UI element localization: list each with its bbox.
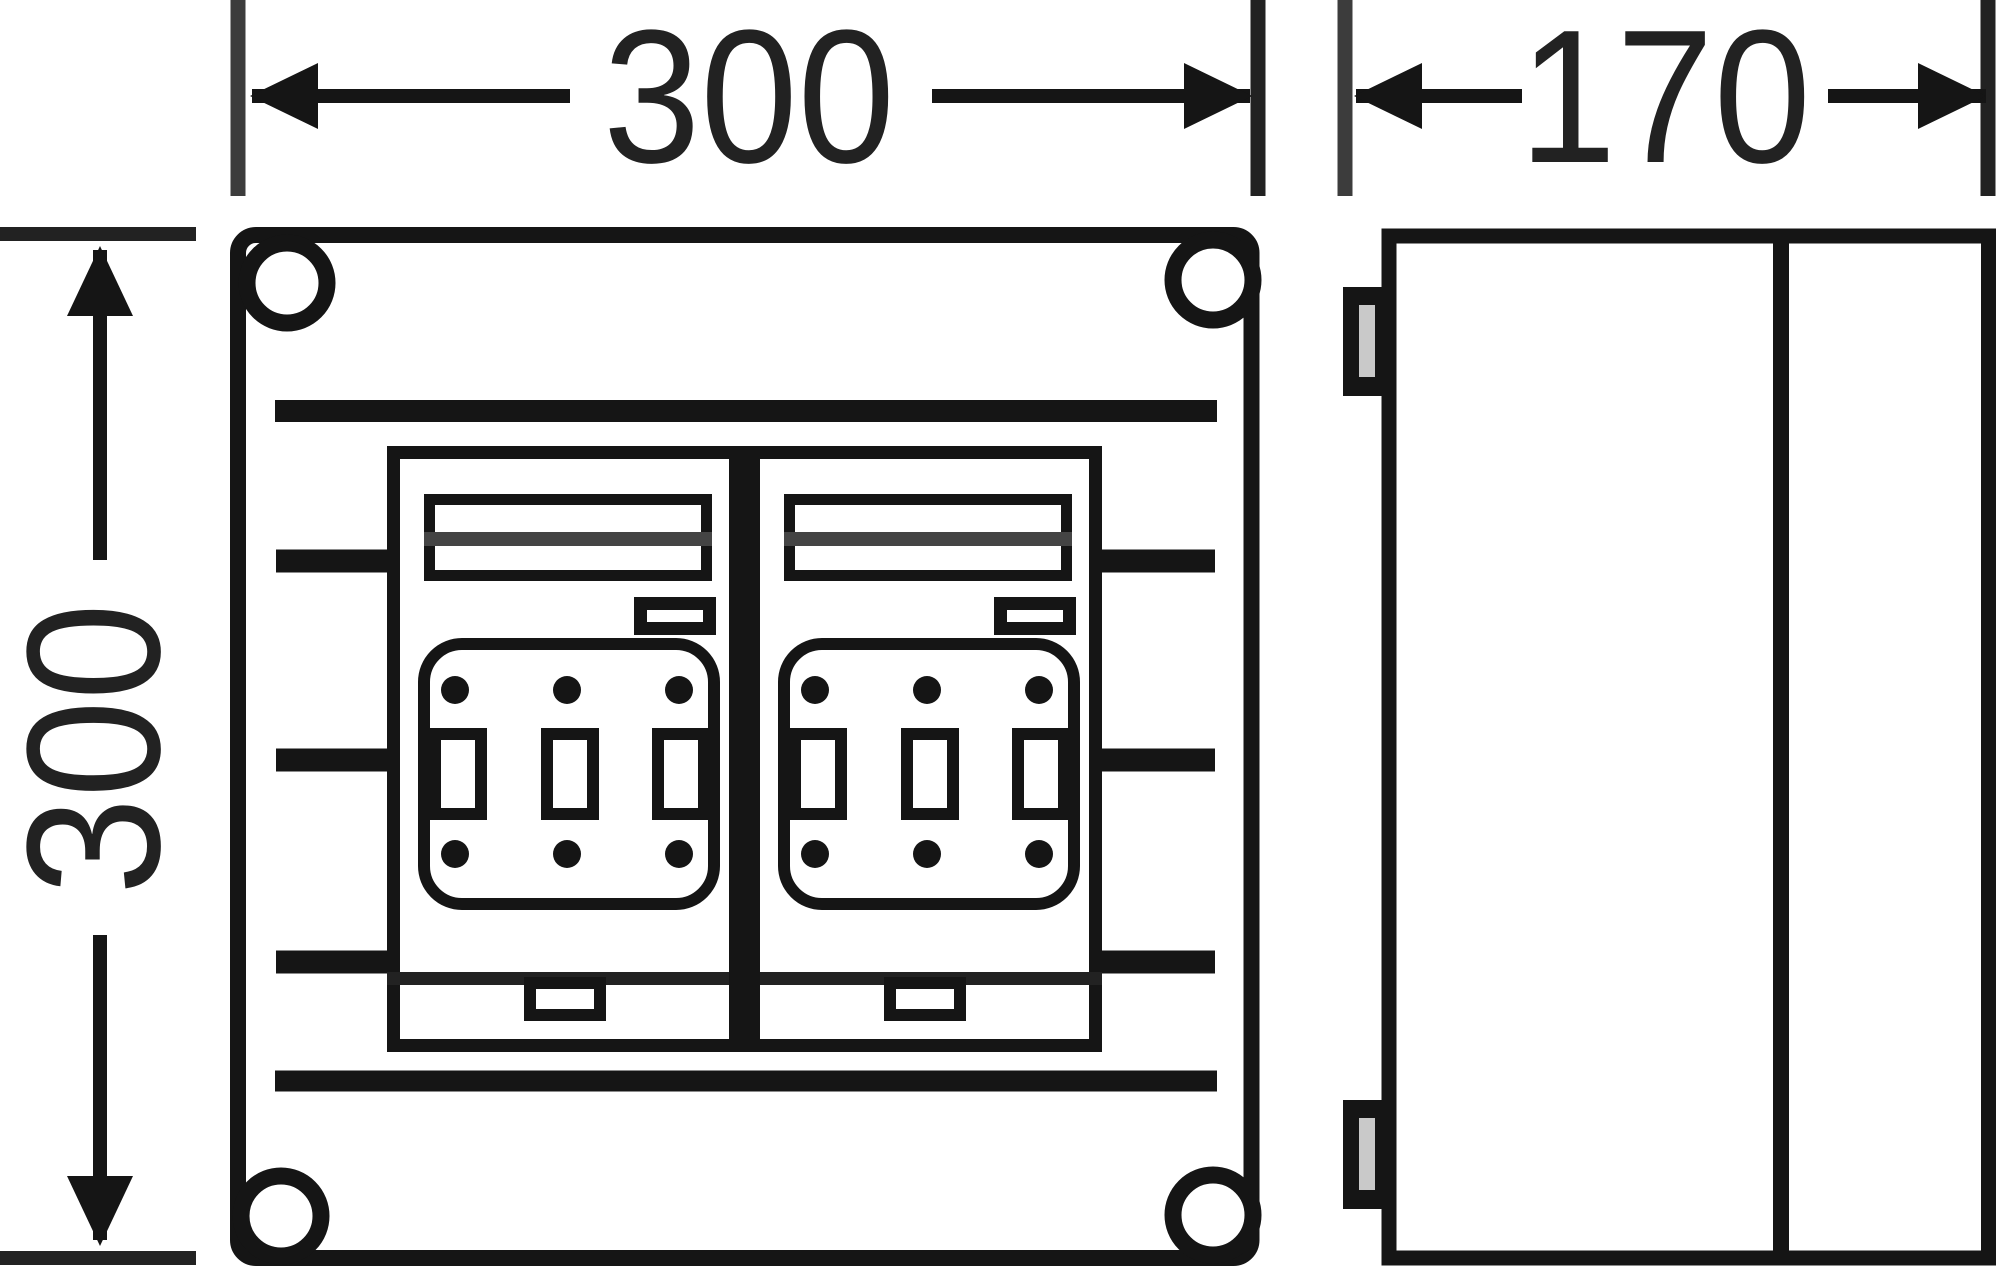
svg-text:300: 300 [603,0,895,203]
svg-text:170: 170 [1519,0,1811,203]
svg-text:300: 300 [0,603,200,895]
